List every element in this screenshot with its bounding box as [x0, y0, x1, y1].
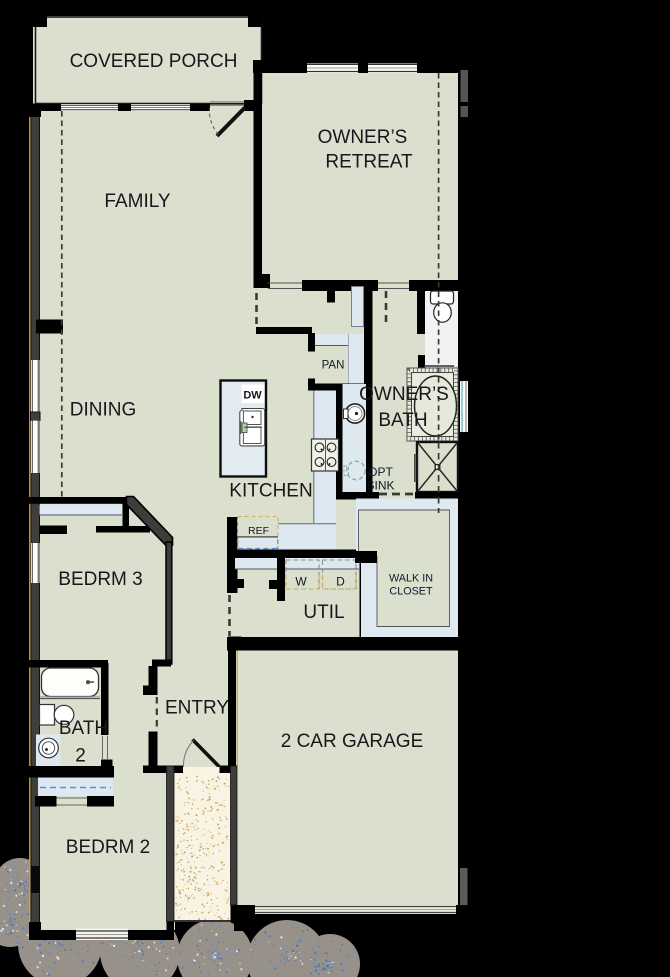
svg-text:FAMILY: FAMILY: [104, 191, 170, 212]
svg-text:ENTRY: ENTRY: [165, 698, 229, 719]
svg-text:OPT: OPT: [368, 465, 393, 479]
svg-text:WALK IN: WALK IN: [389, 573, 433, 585]
svg-text:UTIL: UTIL: [303, 602, 344, 623]
svg-text:SINK: SINK: [366, 479, 394, 493]
svg-text:BATH: BATH: [59, 718, 108, 739]
svg-text:BATH: BATH: [378, 410, 427, 431]
svg-text:2 CAR GARAGE: 2 CAR GARAGE: [281, 731, 424, 752]
svg-text:KITCHEN: KITCHEN: [229, 481, 312, 502]
svg-text:DINING: DINING: [70, 400, 137, 421]
svg-text:W: W: [295, 575, 307, 589]
svg-text:REF: REF: [248, 525, 269, 537]
svg-text:D: D: [336, 575, 345, 589]
svg-text:2: 2: [75, 746, 86, 767]
svg-text:COVERED PORCH: COVERED PORCH: [70, 51, 238, 72]
svg-text:OWNER’S: OWNER’S: [359, 384, 449, 405]
svg-text:OWNER’S: OWNER’S: [318, 127, 408, 148]
svg-text:PAN: PAN: [322, 360, 345, 372]
svg-text:BEDRM 3: BEDRM 3: [58, 569, 142, 590]
svg-text:DW: DW: [243, 390, 262, 402]
svg-text:RETREAT: RETREAT: [325, 152, 413, 173]
svg-text:BEDRM 2: BEDRM 2: [66, 837, 150, 858]
svg-text:CLOSET: CLOSET: [389, 586, 433, 598]
